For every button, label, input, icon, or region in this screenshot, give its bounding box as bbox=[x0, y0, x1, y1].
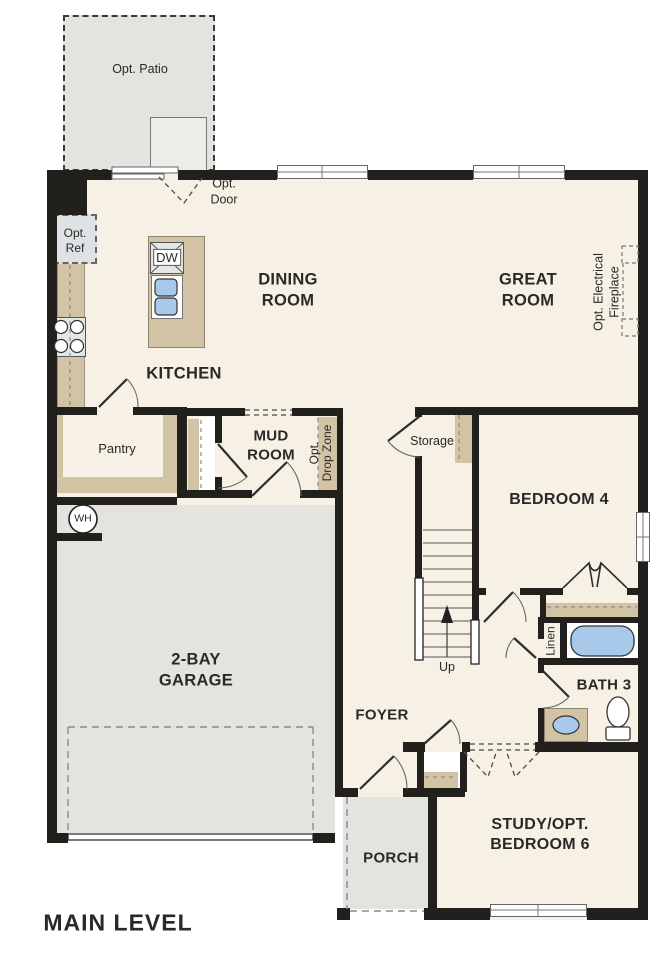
wall bbox=[428, 797, 437, 908]
wall bbox=[47, 180, 57, 843]
room-label-mud: MUD ROOM bbox=[247, 427, 295, 465]
wall bbox=[133, 407, 178, 415]
wall bbox=[478, 588, 486, 595]
room-label-storage: Storage bbox=[410, 434, 454, 450]
wall bbox=[215, 415, 222, 443]
label-opt-drop-zone: Opt. Drop Zone bbox=[308, 413, 334, 493]
wall bbox=[460, 752, 467, 792]
wall bbox=[538, 708, 544, 742]
wall bbox=[462, 742, 470, 752]
label-opt-ref: Opt. Ref bbox=[64, 226, 87, 256]
floor-plan: Opt. Patio Opt. Door Opt. Ref DW DINING … bbox=[0, 0, 664, 966]
room-label-great: GREAT ROOM bbox=[499, 269, 557, 310]
wall bbox=[313, 833, 335, 843]
wall bbox=[415, 456, 422, 580]
wall bbox=[415, 407, 422, 417]
cooktop bbox=[52, 317, 86, 357]
window bbox=[490, 904, 587, 917]
bedroom4-closet-shelf bbox=[546, 603, 638, 617]
plan-level-title: MAIN LEVEL bbox=[43, 909, 192, 938]
mud-closet-floor bbox=[199, 417, 215, 490]
patio-stoop bbox=[150, 117, 207, 171]
wall bbox=[638, 170, 648, 512]
storage-shelf bbox=[455, 413, 472, 463]
mud-closet-rod bbox=[188, 419, 199, 491]
wall bbox=[415, 407, 648, 415]
wall bbox=[565, 170, 648, 180]
garage-opening bbox=[68, 834, 313, 840]
wall bbox=[335, 788, 358, 797]
wall bbox=[587, 908, 648, 920]
wall bbox=[538, 665, 544, 673]
label-water-heater: WH bbox=[74, 512, 92, 525]
wall bbox=[627, 588, 638, 595]
wall bbox=[47, 407, 97, 415]
wall bbox=[335, 497, 343, 790]
wall bbox=[47, 497, 177, 505]
wall bbox=[403, 788, 465, 797]
tub-niche bbox=[567, 623, 638, 658]
label-stairs-up: Up bbox=[439, 660, 455, 676]
room-label-pantry: Pantry bbox=[98, 441, 136, 457]
room-label-foyer: FOYER bbox=[355, 707, 408, 726]
label-linen: Linen bbox=[544, 619, 559, 663]
wall bbox=[177, 408, 245, 416]
wall bbox=[368, 170, 473, 180]
room-label-study: STUDY/OPT. BEDROOM 6 bbox=[490, 815, 590, 855]
window bbox=[473, 165, 565, 179]
wall bbox=[47, 833, 68, 843]
label-opt-door: Opt. Door bbox=[210, 176, 237, 207]
wall bbox=[177, 490, 252, 498]
dw-chip: DW bbox=[153, 249, 181, 266]
wall bbox=[87, 170, 112, 180]
wall bbox=[337, 408, 343, 498]
room-label-porch: PORCH bbox=[363, 850, 419, 869]
wall bbox=[430, 908, 490, 920]
label-opt-fireplace: Opt. Electrical Fireplace bbox=[591, 232, 622, 352]
label-opt-patio: Opt. Patio bbox=[112, 62, 168, 78]
room-label-dining: DINING ROOM bbox=[258, 269, 318, 310]
wall bbox=[560, 623, 567, 660]
room-label-garage: 2-BAY GARAGE bbox=[159, 649, 233, 690]
bath-vanity bbox=[544, 708, 588, 742]
island-sink-unit bbox=[151, 275, 183, 319]
room-label-kitchen: KITCHEN bbox=[146, 364, 221, 385]
foyer-closet-shelf bbox=[424, 772, 458, 789]
window bbox=[636, 512, 650, 562]
window bbox=[277, 165, 368, 179]
room-label-bath3: BATH 3 bbox=[577, 677, 632, 696]
wall bbox=[337, 908, 350, 920]
wall bbox=[424, 908, 437, 920]
wall bbox=[638, 562, 648, 920]
wall bbox=[177, 407, 187, 497]
room-label-bedroom4: BEDROOM 4 bbox=[509, 490, 609, 510]
wall bbox=[535, 742, 648, 752]
label-dishwasher: DW bbox=[153, 250, 181, 266]
wall bbox=[47, 533, 102, 541]
